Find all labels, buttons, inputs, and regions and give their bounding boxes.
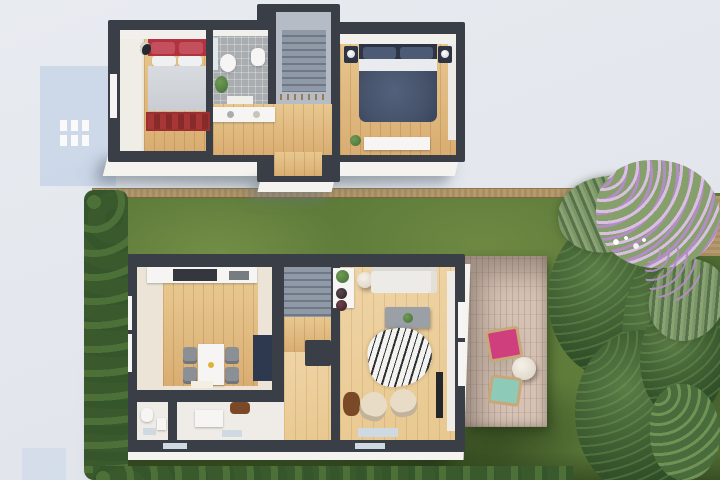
staircase-upper [282, 30, 326, 92]
bedroom2-window [110, 74, 117, 118]
sideboard-item [227, 111, 234, 118]
white-sheet [359, 59, 437, 71]
upper-hallway [213, 104, 332, 155]
deck-chair-pink [484, 325, 523, 362]
wc-toilet [141, 408, 153, 422]
nightstand-left [344, 46, 358, 63]
facade-reflection-bottom-left [22, 448, 66, 480]
bedroom2-wardrobe [120, 39, 142, 151]
bush-bottom-right [650, 384, 720, 480]
cooktop [173, 269, 217, 281]
bathroom-plant [215, 76, 228, 93]
table-decor [208, 362, 214, 368]
purple-flower-spill [645, 246, 700, 301]
master-plant [350, 135, 361, 146]
red-oriental-rug [146, 112, 210, 131]
stairwell-upper [276, 12, 331, 104]
white-flowers [610, 234, 650, 258]
under-stair-storage [305, 340, 331, 366]
stair-railing [280, 94, 328, 100]
bedside-decor [140, 42, 151, 55]
red-pillow [179, 42, 203, 54]
armchair [357, 389, 391, 424]
entry-doormat [222, 430, 242, 437]
living-room [340, 267, 455, 440]
navy-cabinet [253, 335, 272, 381]
master-wall-face [340, 34, 456, 44]
plant-pot [336, 300, 347, 311]
navy-duvet [359, 71, 437, 122]
tv [436, 372, 443, 418]
bedside-lamp [441, 50, 449, 58]
bedside-lamp [347, 50, 355, 58]
red-pillow [151, 42, 175, 54]
kitchen-doormat [191, 381, 213, 388]
bottom-window-sill-2 [355, 443, 385, 449]
coffee-table-plant [403, 313, 413, 323]
sideboard-item [253, 111, 260, 118]
facade-windows [60, 120, 89, 146]
armchair [388, 387, 419, 419]
bathroom [213, 30, 268, 104]
kitchen-sink [229, 271, 249, 280]
terrace-deck [465, 256, 547, 427]
wc-basin [157, 418, 166, 430]
dining-table [198, 344, 224, 385]
bed-red [148, 39, 206, 111]
bathroom-toilet [251, 48, 265, 66]
shelf-plant [336, 270, 349, 283]
bathroom-wall-face [213, 30, 268, 36]
upper-hall-bump-floor [274, 152, 322, 176]
deck-chair-teal [487, 374, 523, 407]
coat-bench [230, 402, 250, 414]
dining-chair [183, 347, 197, 364]
white-pillow [178, 56, 202, 66]
zebra-rug [364, 324, 435, 390]
hall-sideboard [213, 107, 275, 122]
coffee-table [385, 307, 430, 328]
bathroom-sink [220, 54, 236, 72]
kitchen-dining-room [137, 267, 272, 390]
living-room-terrace-door-2 [458, 342, 465, 386]
brown-pouf [343, 392, 360, 416]
entry-hallway [177, 402, 284, 440]
ground-floor-plan [125, 254, 465, 452]
floorplan-render [0, 0, 720, 480]
navy-pillow [400, 47, 433, 59]
bottom-hedge [93, 466, 573, 480]
bedroom2-wall-face [120, 30, 206, 39]
master-bench [364, 137, 430, 150]
wc-room [137, 402, 168, 440]
living-room-window-sill [358, 428, 398, 437]
shoe-cabinet [195, 410, 223, 427]
bathroom-mirror [213, 38, 218, 70]
sofa [371, 267, 437, 293]
staircase-ground [284, 267, 331, 317]
left-hedge [84, 190, 128, 480]
living-room-terrace-door-1 [458, 302, 465, 338]
white-pillow [152, 56, 176, 66]
living-room-wall-face [447, 271, 455, 431]
upper-floor-plan [108, 4, 465, 196]
gray-duvet [148, 66, 206, 111]
wc-mat [143, 428, 156, 435]
nightstand-right [438, 46, 452, 63]
dining-chair [225, 347, 239, 364]
navy-pillow [363, 47, 396, 59]
bathroom-door [227, 96, 253, 104]
bed-navy [359, 44, 437, 122]
plant-pot [336, 288, 347, 299]
bedroom-2 [120, 30, 206, 151]
bottom-window-sill-1 [163, 443, 187, 449]
dining-chair [225, 367, 239, 384]
master-bedroom [340, 34, 456, 155]
